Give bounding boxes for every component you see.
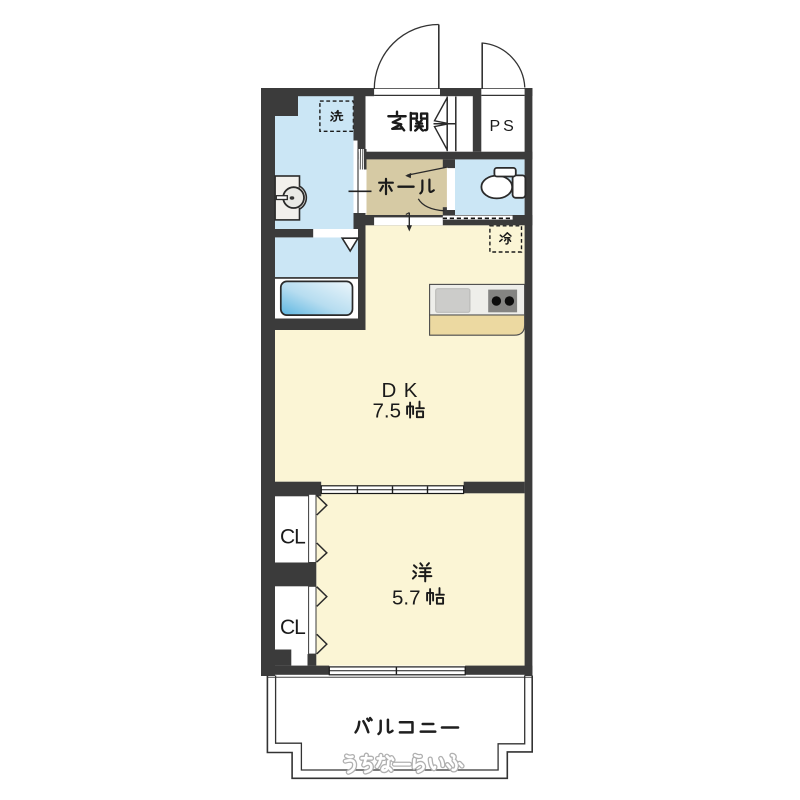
svg-text:5.7: 5.7 (392, 587, 421, 610)
svg-text:PS: PS (490, 118, 517, 135)
svg-text:CL: CL (280, 616, 305, 639)
svg-text:CL: CL (280, 526, 305, 549)
svg-text:7.5: 7.5 (373, 400, 402, 423)
